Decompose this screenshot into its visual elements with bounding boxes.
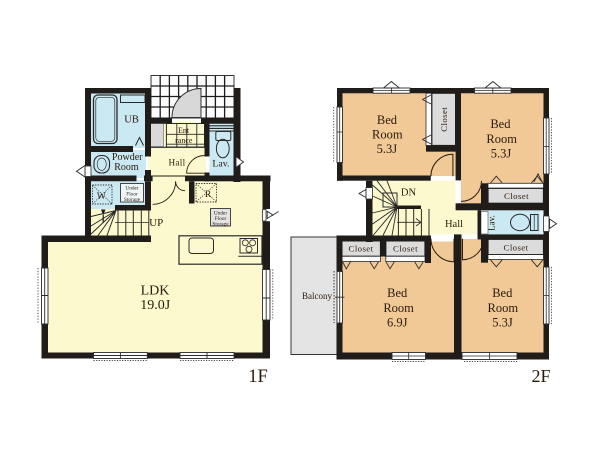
svg-text:Bed: Bed	[377, 113, 398, 127]
svg-text:Room: Room	[488, 301, 519, 315]
svg-text:Bed: Bed	[490, 117, 511, 131]
svg-text:19.0J: 19.0J	[140, 298, 171, 313]
svg-text:Closet: Closet	[504, 243, 529, 253]
svg-text:UP: UP	[149, 217, 163, 229]
svg-text:DN: DN	[401, 188, 417, 199]
svg-text:Closet: Closet	[504, 191, 529, 201]
svg-text:1F: 1F	[248, 367, 268, 387]
svg-text:2F: 2F	[531, 366, 550, 386]
svg-text:Room: Room	[383, 301, 414, 315]
svg-text:Ent: Ent	[178, 126, 190, 135]
svg-text:Storage: Storage	[124, 197, 141, 203]
svg-text:Hall: Hall	[168, 158, 185, 168]
svg-text:5.3J: 5.3J	[492, 315, 513, 329]
svg-text:LDK: LDK	[141, 284, 170, 299]
svg-text:Storage: Storage	[212, 222, 229, 228]
svg-text:5.3J: 5.3J	[491, 147, 512, 161]
svg-text:Bed: Bed	[492, 286, 513, 300]
svg-text:Lav.: Lav.	[212, 159, 229, 170]
svg-text:6.9J: 6.9J	[387, 315, 408, 329]
svg-text:Closet: Closet	[393, 243, 418, 253]
svg-text:R: R	[205, 190, 212, 200]
svg-text:Room: Room	[114, 162, 139, 173]
svg-text:Closet: Closet	[349, 243, 374, 253]
svg-text:UB: UB	[124, 115, 139, 126]
svg-text:Hall: Hall	[445, 219, 463, 230]
svg-text:W: W	[97, 192, 106, 202]
svg-text:5.3J: 5.3J	[377, 142, 398, 156]
svg-text:Bed: Bed	[387, 286, 408, 300]
svg-text:Balcony: Balcony	[302, 291, 332, 301]
svg-text:Room: Room	[372, 128, 403, 142]
svg-text:Room: Room	[486, 132, 517, 146]
svg-text:Closet: Closet	[439, 107, 449, 132]
svg-text:rance: rance	[175, 136, 193, 145]
